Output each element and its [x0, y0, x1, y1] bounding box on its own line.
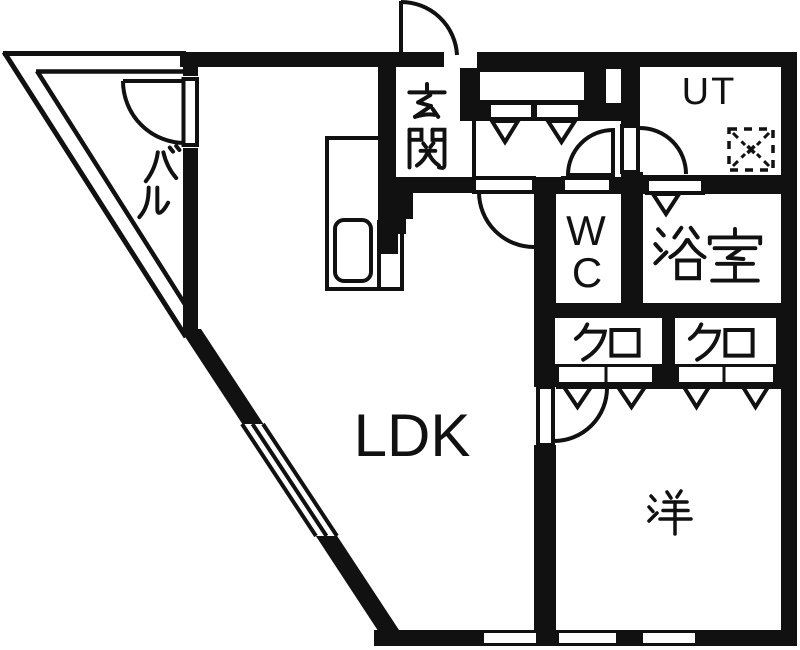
svg-text:C: C: [572, 249, 602, 296]
svg-text:UT: UT: [682, 71, 737, 113]
svg-text:W: W: [566, 207, 606, 254]
svg-text:LDK: LDK: [354, 402, 471, 469]
